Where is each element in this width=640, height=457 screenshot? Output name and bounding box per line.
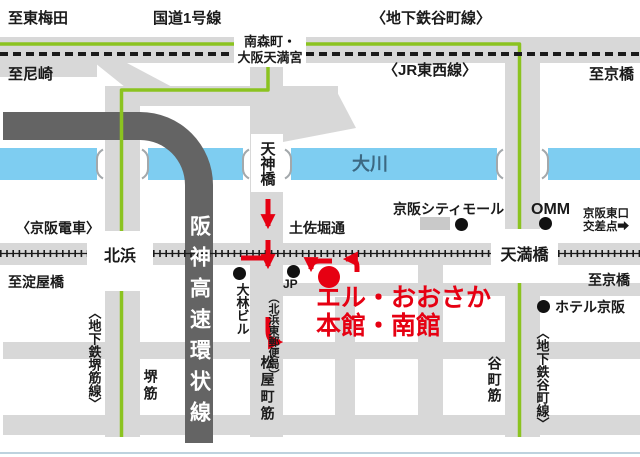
label-l-osaka-line1: エル・おおさか xyxy=(316,284,491,312)
label-hotel-keihan: ホテル京阪 xyxy=(555,300,625,316)
label-subway-tanimachi-bottom: 〈地下鉄谷町線〉 xyxy=(534,326,549,438)
label-to-yodoyabashi: 至淀屋橋 xyxy=(8,275,64,291)
station-kitahama: 北浜 xyxy=(87,243,153,265)
road-route1 xyxy=(0,37,640,63)
label-sakai-suji: 堺筋 xyxy=(142,369,158,409)
label-obayashi-building: 大林ビル xyxy=(234,283,249,343)
jp-post-dot xyxy=(287,265,300,278)
map-bottom-frame xyxy=(0,452,640,454)
label-jr-tozai: 〈JR東西線〉 xyxy=(383,63,477,80)
label-subway-sakaisuji-line: 〈地下鉄堺筋線〉 xyxy=(86,306,101,416)
route-arrow-from-temmabashi xyxy=(346,259,357,272)
station-minamimorimachi: 南森町・ 大阪天満宮 xyxy=(234,33,306,67)
label-okawa-river: 大川 xyxy=(352,154,388,174)
bridge-tenjinbashi: 天神橋 xyxy=(251,134,283,192)
station-temmabashi: 天満橋 xyxy=(491,241,558,265)
label-tosabori-dori: 土佐堀通 xyxy=(289,221,345,237)
keihan-city-mall-dot xyxy=(455,218,468,231)
obayashi-building-dot xyxy=(233,267,246,280)
hotel-keihan-dot xyxy=(537,300,550,313)
station-minamimorimachi-line2: 大阪天満宮 xyxy=(237,50,302,65)
label-omm: OMM xyxy=(531,201,570,219)
label-to-amagasaki: 至尼崎 xyxy=(8,67,53,84)
label-to-higashi-umeda: 至東梅田 xyxy=(8,11,68,28)
label-jp-post-name: （北浜東郵便局） xyxy=(266,292,280,348)
keihan-city-mall-building xyxy=(420,217,450,230)
station-minamimorimachi-line1: 南森町・ xyxy=(244,34,296,49)
bridge-tenjinbashi-label: 天神橋 xyxy=(257,141,278,186)
label-matsuyamachi-suji: 松屋町筋 xyxy=(259,355,275,437)
access-map: 南森町・ 大阪天満宮 北浜 天満橋 天神橋 至東梅田 国道1号線 〈地下鉄谷町線… xyxy=(0,0,640,457)
station-temmabashi-label: 天満橋 xyxy=(500,241,548,265)
label-to-kyobashi-top: 至京橋 xyxy=(589,67,634,84)
road-bridge-approach xyxy=(283,90,356,142)
label-jp-post-prefix: JP xyxy=(283,278,298,291)
label-hanshin-expressway: 阪神高速環状線 xyxy=(187,215,211,445)
label-to-kyobashi-mid: 至京橋 xyxy=(588,273,630,289)
label-keihan-east-exit-line1: 京阪東口 xyxy=(583,208,629,220)
label-route1: 国道1号線 xyxy=(153,11,221,28)
label-keihan-city-mall: 京阪シティモール xyxy=(393,202,504,218)
label-tanimachi-suji: 谷町筋 xyxy=(486,356,502,410)
label-l-osaka-line2: 本館・南館 xyxy=(316,312,441,340)
label-keihan-railway: 〈京阪電車〉 xyxy=(16,221,100,237)
station-kitahama-label: 北浜 xyxy=(104,242,136,266)
label-keihan-east-exit-line2: 交差点➡ xyxy=(583,221,629,233)
label-subway-tanimachi-top: 〈地下鉄谷町線〉 xyxy=(371,11,491,28)
label-keihan-east-exit: 京阪東口 交差点➡ xyxy=(583,208,629,234)
omm-dot xyxy=(539,217,552,230)
